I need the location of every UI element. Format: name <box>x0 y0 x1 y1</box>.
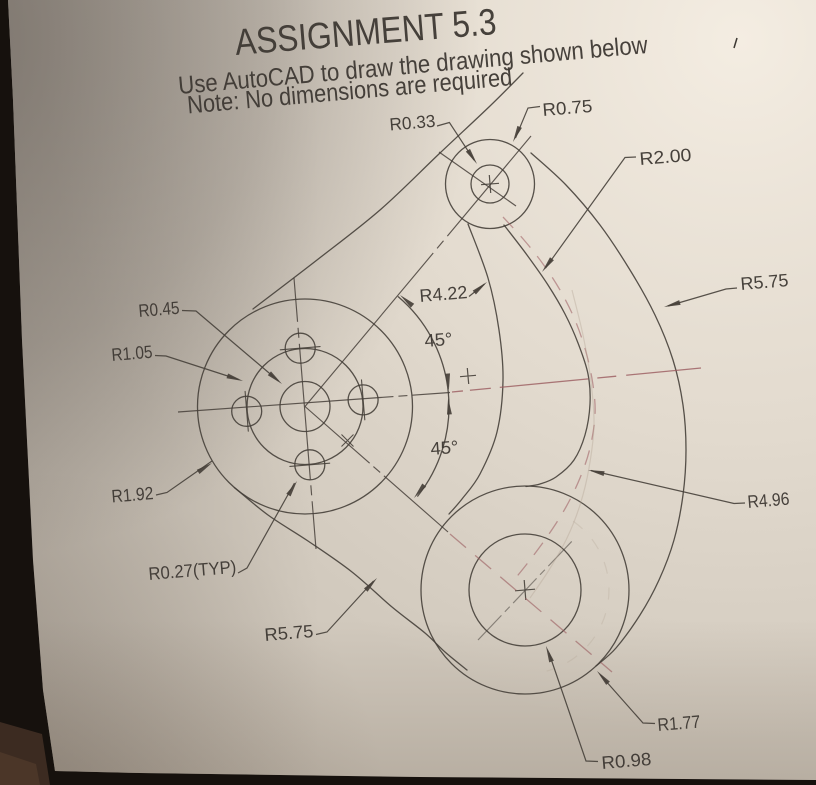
svg-text:45°: 45° <box>424 329 454 351</box>
svg-text:R1.77: R1.77 <box>657 712 701 735</box>
svg-text:R4.22: R4.22 <box>419 282 468 306</box>
svg-text:R0.45: R0.45 <box>138 298 181 321</box>
svg-text:R1.05: R1.05 <box>111 342 154 365</box>
svg-text:R0.98: R0.98 <box>601 749 652 773</box>
svg-text:R0.33: R0.33 <box>389 111 436 135</box>
svg-text:45°: 45° <box>430 437 460 459</box>
svg-text:R4.96: R4.96 <box>747 489 790 512</box>
svg-text:R5.75: R5.75 <box>264 621 314 645</box>
svg-text:R1.92: R1.92 <box>111 483 154 506</box>
svg-text:R2.00: R2.00 <box>639 145 692 169</box>
svg-text:R0.75: R0.75 <box>542 96 593 120</box>
svg-text:R5.75: R5.75 <box>740 270 789 294</box>
